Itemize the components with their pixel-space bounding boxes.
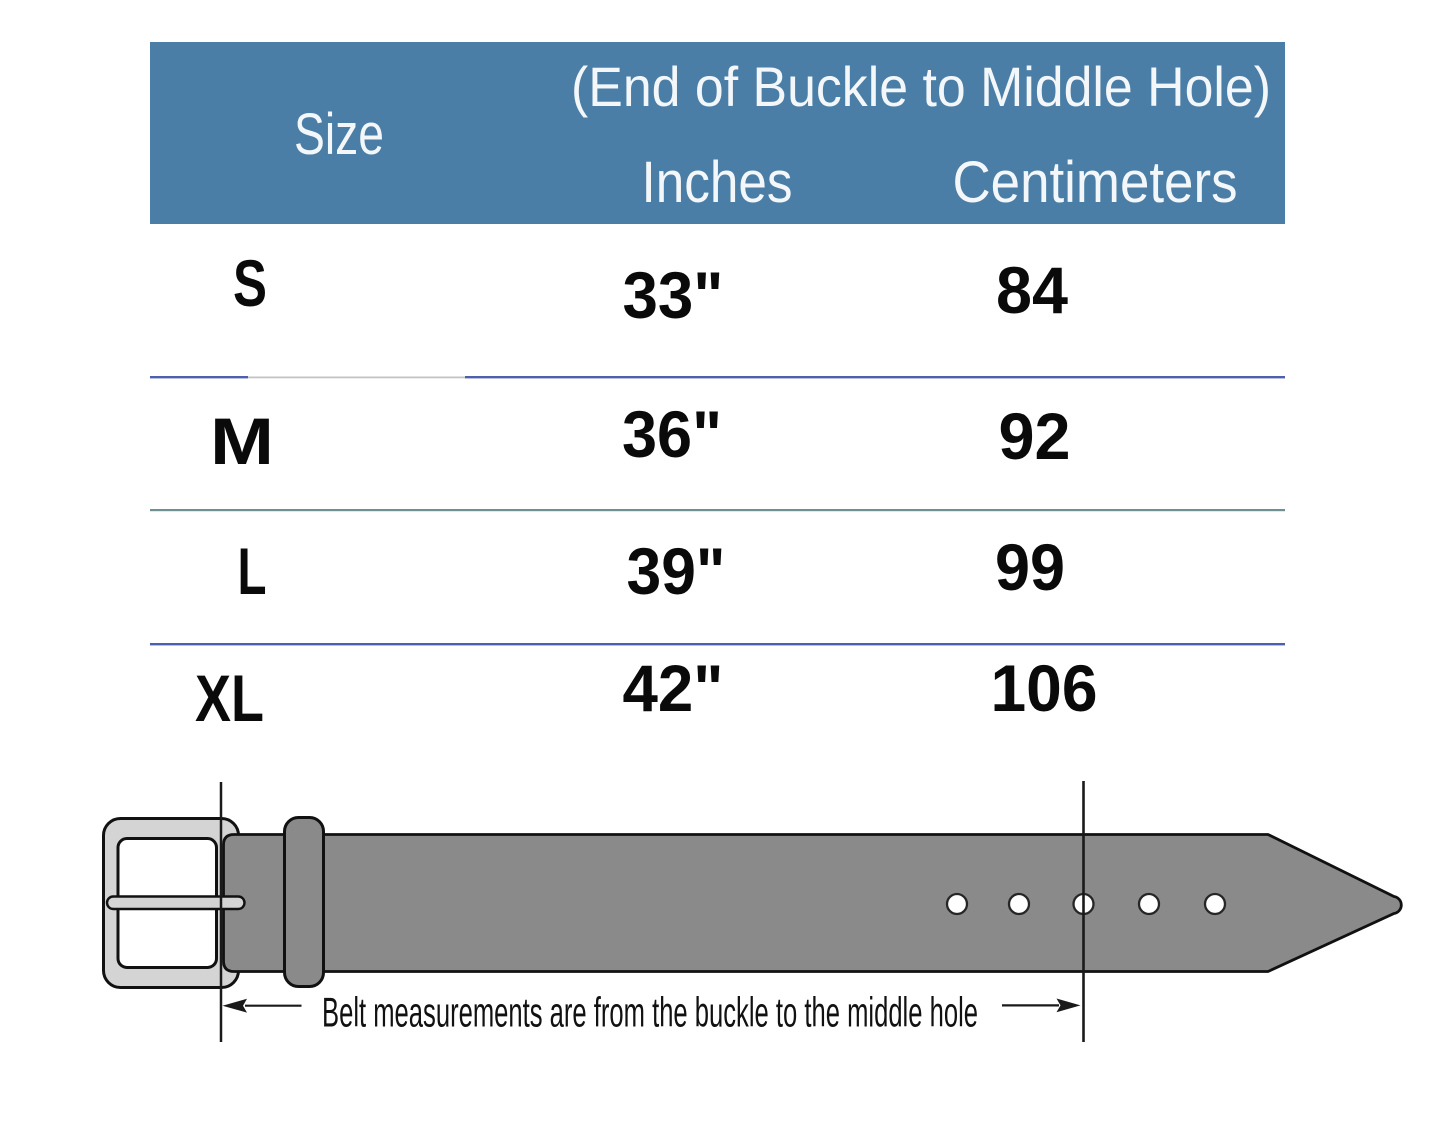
svg-text:(End of Buckle to Middle Hole): (End of Buckle to Middle Hole)	[571, 55, 1271, 118]
svg-text:XL: XL	[195, 661, 264, 735]
svg-text:84: 84	[996, 253, 1068, 327]
svg-text:S: S	[233, 246, 267, 320]
svg-text:36": 36"	[622, 397, 722, 471]
svg-text:M: M	[210, 404, 274, 478]
svg-text:Belt measurements are from the: Belt measurements are from the buckle to…	[322, 989, 978, 1036]
svg-text:92: 92	[999, 399, 1071, 473]
svg-text:106: 106	[991, 651, 1098, 725]
svg-text:39": 39"	[627, 534, 726, 608]
svg-text:L: L	[238, 534, 267, 608]
svg-text:33": 33"	[623, 258, 724, 332]
svg-text:Size: Size	[294, 102, 384, 167]
svg-text:99: 99	[995, 530, 1065, 604]
svg-text:Centimeters: Centimeters	[953, 150, 1238, 215]
svg-text:42": 42"	[623, 651, 724, 725]
svg-text:Inches: Inches	[642, 150, 793, 215]
